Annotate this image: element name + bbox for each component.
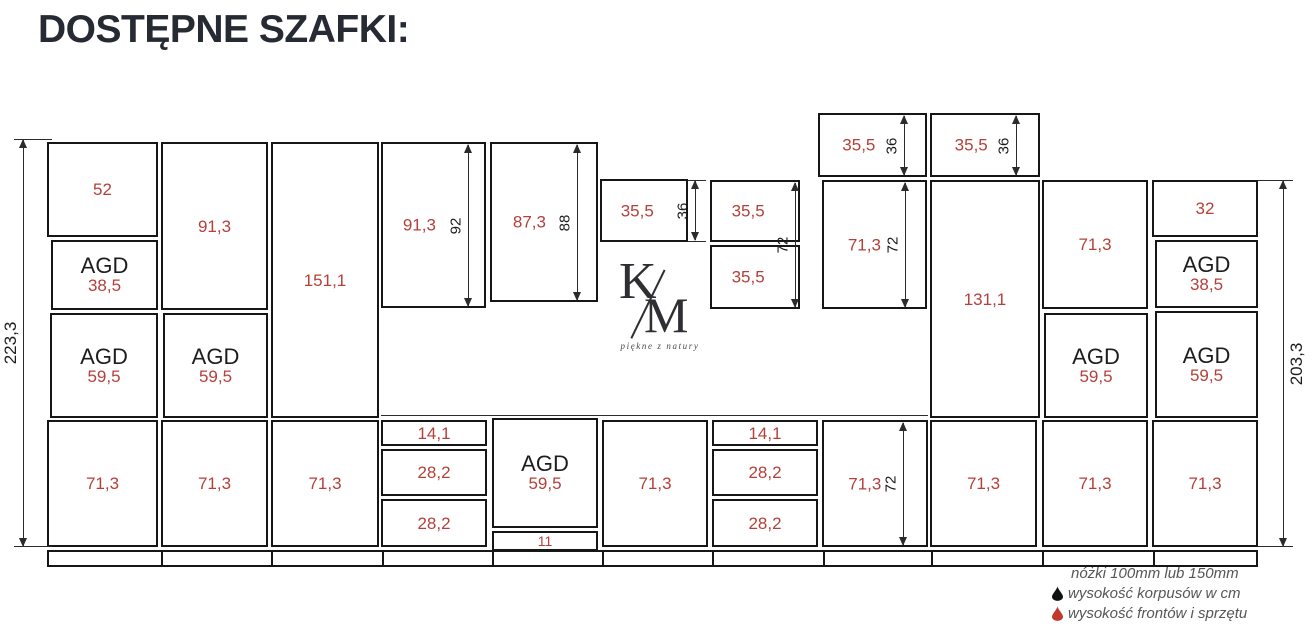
cabinet-box: 52 [47, 142, 158, 237]
plinth-divider [931, 552, 933, 565]
cabinet-box: 91,3 [381, 142, 486, 308]
cabinet-size-label: 32 [1196, 200, 1215, 217]
cabinet-size-label: 59,5 [1190, 367, 1223, 386]
cabinet-box: 35,5 [710, 180, 800, 242]
cabinet-box: 71,3 [161, 420, 268, 547]
cabinet-box: 151,1 [271, 142, 379, 418]
cabinet-size-label: 71,3 [1078, 475, 1111, 492]
cabinet-size-label: 131,1 [964, 291, 1007, 308]
cabinet-box: 35,5 [600, 179, 688, 242]
agd-label: AGD [1072, 345, 1120, 368]
cabinet-box: 14,1 [381, 420, 487, 446]
cabinet-box: 71,3 [1042, 180, 1148, 309]
agd-cabinet-box: AGD59,5 [1155, 311, 1258, 418]
cabinet-box: 35,5 [710, 245, 800, 309]
cabinet-box: 71,3 [822, 180, 927, 309]
agd-cabinet-box: AGD38,5 [51, 240, 158, 310]
legend: nóżki 100mm lub 150mm wysokość korpusów … [1052, 564, 1247, 623]
legend-fronty-text: wysokość frontów i sprzętu [1068, 604, 1247, 624]
agd-label: AGD [1183, 344, 1231, 367]
legend-row-fronty: wysokość frontów i sprzętu [1052, 604, 1247, 624]
cabinet-size-label: 71,3 [198, 475, 231, 492]
cabinet-box: 71,3 [271, 420, 379, 547]
cabinet-box: 32 [1152, 180, 1258, 237]
agd-cabinet-box: AGD59,5 [163, 313, 268, 418]
legend-korpus-text: wysokość korpusów w cm [1068, 584, 1241, 604]
agd-cabinet-box: AGD38,5 [1155, 240, 1258, 308]
cabinet-size-label: 71,3 [308, 475, 341, 492]
cabinet-size-label: 71,3 [638, 475, 671, 492]
cabinet-size-label: 52 [93, 181, 112, 198]
cabinet-size-label: 71,3 [848, 236, 881, 253]
cabinet-size-label: 59,5 [87, 368, 120, 387]
cabinet-box: 35,5 [818, 113, 927, 177]
cabinet-box: 28,2 [381, 499, 487, 547]
logo-letter-m: M [644, 290, 688, 340]
cabinet-size-label: 35,5 [621, 202, 654, 219]
plinth-divider [271, 552, 273, 565]
plinth-divider [382, 552, 384, 565]
cabinet-box: 28,2 [381, 449, 487, 496]
cabinet-size-label: 28,2 [417, 464, 450, 481]
cabinet-size-label: 71,3 [848, 475, 881, 492]
cabinet-box: 131,1 [930, 180, 1040, 418]
cabinet-size-label: 28,2 [417, 515, 450, 532]
legend-row-korpus: wysokość korpusów w cm [1052, 584, 1247, 604]
cabinet-size-label: 71,3 [1078, 236, 1111, 253]
cabinet-box: 71,3 [602, 420, 708, 547]
plinth-divider [161, 552, 163, 565]
cabinet-size-label: 35,5 [732, 203, 765, 220]
cabinet-size-label: 71,3 [86, 475, 119, 492]
cabinet-size-label: 87,3 [513, 214, 546, 231]
plinth-divider [1042, 552, 1044, 565]
cabinet-box: 14,1 [712, 420, 818, 446]
cabinet-box: 28,2 [712, 499, 818, 547]
agd-label: AGD [1183, 253, 1231, 276]
cabinet-size-label: 59,5 [199, 368, 232, 387]
cabinet-box: 71,3 [1152, 420, 1258, 547]
agd-cabinet-box: AGD59,5 [1044, 313, 1148, 418]
plinth-divider [602, 552, 604, 565]
cabinet-box: 71,3 [822, 420, 928, 547]
km-logo: K M piękne z natury [600, 252, 720, 357]
cabinet-size-label: 71,3 [1188, 475, 1221, 492]
cabinet-size-label: 14,1 [417, 425, 450, 442]
agd-cabinet-box: AGD59,5 [50, 313, 158, 418]
cabinet-box: 71,3 [1042, 420, 1148, 547]
plinth-divider [712, 552, 714, 565]
cabinet-diagram-page: DOSTĘPNE SZAFKI: 52AGD38,5AGD59,591,3AGD… [0, 0, 1312, 630]
cabinet-size-label: 14,1 [748, 425, 781, 442]
cabinet-size-label: 59,5 [528, 475, 561, 494]
cabinet-box: 71,3 [47, 420, 158, 547]
agd-label: AGD [81, 254, 129, 277]
agd-label: AGD [192, 345, 240, 368]
cabinet-box: 28,2 [712, 449, 818, 496]
plinth-divider [823, 552, 825, 565]
cabinet-size-label: 59,5 [1079, 368, 1112, 387]
plinth-divider [492, 552, 494, 565]
cabinet-size-label: 91,3 [198, 218, 231, 235]
cabinet-size-label: 35,5 [955, 137, 988, 154]
cabinet-box: 91,3 [161, 142, 268, 310]
cabinet-size-label: 28,2 [748, 464, 781, 481]
agd-label: AGD [80, 345, 128, 368]
cabinet-size-label: 71,3 [967, 475, 1000, 492]
cabinet-size-label: 151,1 [304, 272, 347, 289]
cabinet-size-label: 35,5 [842, 137, 875, 154]
cabinet-box: 71,3 [930, 420, 1037, 547]
cabinet-size-label: 38,5 [1190, 276, 1223, 295]
agd-cabinet-box: AGD59,5 [492, 418, 598, 528]
cabinet-size-label: 11 [538, 534, 553, 548]
black-drop-icon [1052, 586, 1063, 601]
cabinet-box: 87,3 [490, 142, 598, 302]
legend-feet-note: nóżki 100mm lub 150mm [1071, 564, 1247, 584]
cabinet-size-label: 35,5 [732, 269, 765, 286]
cabinet-size-label: 91,3 [403, 217, 436, 234]
cabinet-size-label: 28,2 [748, 515, 781, 532]
agd-label: AGD [521, 452, 569, 475]
cabinet-box: 11 [492, 531, 598, 551]
red-drop-icon [1052, 606, 1063, 621]
cabinet-box: 35,5 [930, 113, 1040, 177]
cabinet-size-label: 38,5 [88, 277, 121, 296]
logo-tagline: piękne z natury [608, 341, 712, 351]
